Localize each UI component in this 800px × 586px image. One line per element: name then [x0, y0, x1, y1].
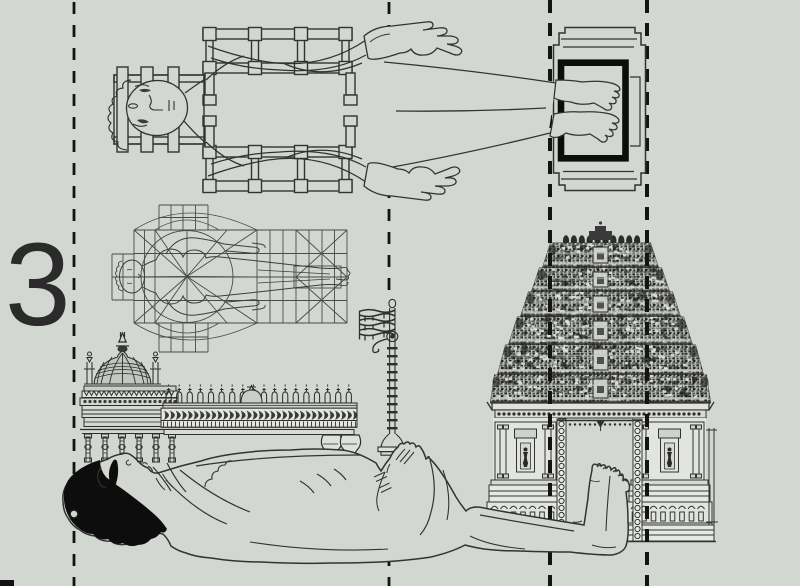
- svg-text:3: 3: [5, 219, 71, 351]
